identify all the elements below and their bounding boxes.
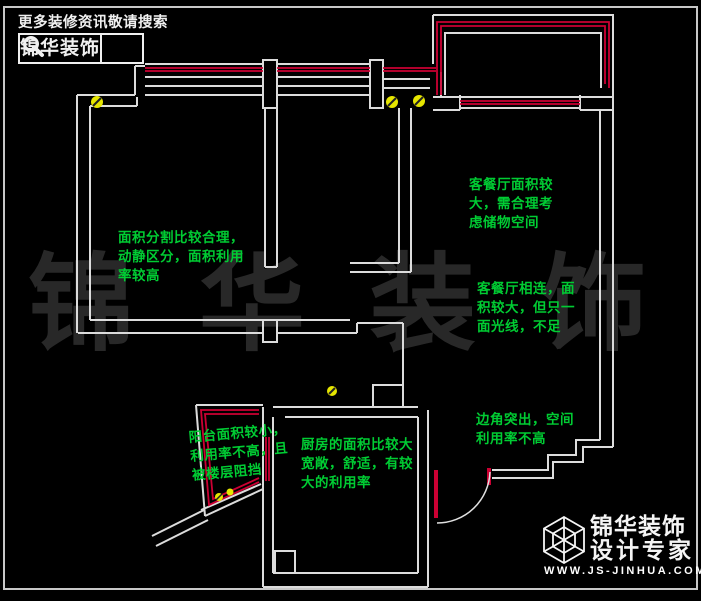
entrance-door-arc — [437, 472, 490, 523]
note-storage: 客餐厅面积较 大，需合理考 虑储物空间 — [469, 176, 553, 233]
socket-icon — [227, 489, 234, 496]
floorplan-drawing — [0, 0, 701, 601]
note-corner: 边角突出，空间 利用率不高 — [476, 411, 574, 449]
note-bedroom: 面积分割比较合理， 动静区分，面积利用 率较高 — [118, 229, 244, 286]
search-cell — [100, 35, 142, 62]
footer-brand: 锦华装饰 设计专家 — [590, 514, 694, 562]
note-kitchen: 厨房的面积比较大 宽敞，舒适，有较 大的利用率 — [301, 436, 413, 493]
brand-logo-box: 锦华装饰 — [18, 33, 144, 64]
socket-icon — [215, 493, 223, 501]
socket-icon — [386, 96, 398, 108]
footer-brand-line1: 锦华装饰 — [590, 514, 694, 538]
socket-icon — [91, 96, 103, 108]
search-icon — [20, 35, 46, 59]
socket-icon — [327, 386, 337, 396]
header-tagline: 更多装修资讯敬请搜索 — [18, 11, 168, 32]
socket-icon — [413, 95, 425, 107]
floorplan-poster: 锦 华 装 饰 面积分割 — [0, 0, 701, 601]
footer-website: WWW.JS-JINHUA.COM — [544, 565, 701, 577]
note-living: 客餐厅相连，面 积较大，但只一 面光线，不足 — [477, 280, 575, 337]
entrance-door-jamb-left — [434, 470, 438, 518]
note-balcony: 阳台面积较小， 利用率不高，且 被楼层阻挡 — [188, 420, 291, 485]
footer-brand-line2: 设计专家 — [590, 538, 694, 562]
